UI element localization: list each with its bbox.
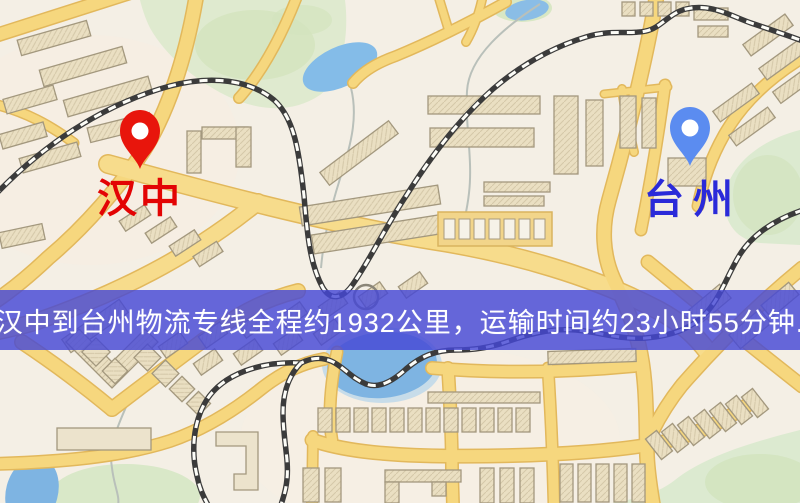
industrial-complex <box>438 212 552 246</box>
route-info-text: 汉中到台州物流专线全程约1932公里，运输时间约23小时55分钟. <box>0 301 800 340</box>
route-info-banner: 汉中到台州物流专线全程约1932公里，运输时间约23小时55分钟. <box>0 290 800 350</box>
origin-pin-dot <box>132 123 149 140</box>
origin-label: 汉中 <box>97 177 183 221</box>
destination-label: 台州 <box>644 178 742 222</box>
map-canvas[interactable]: 汉中 台州 汉中到台州物流专线全程约1932公里，运输时间约23小时55分钟. <box>0 0 800 503</box>
destination-pin-dot <box>682 120 699 137</box>
